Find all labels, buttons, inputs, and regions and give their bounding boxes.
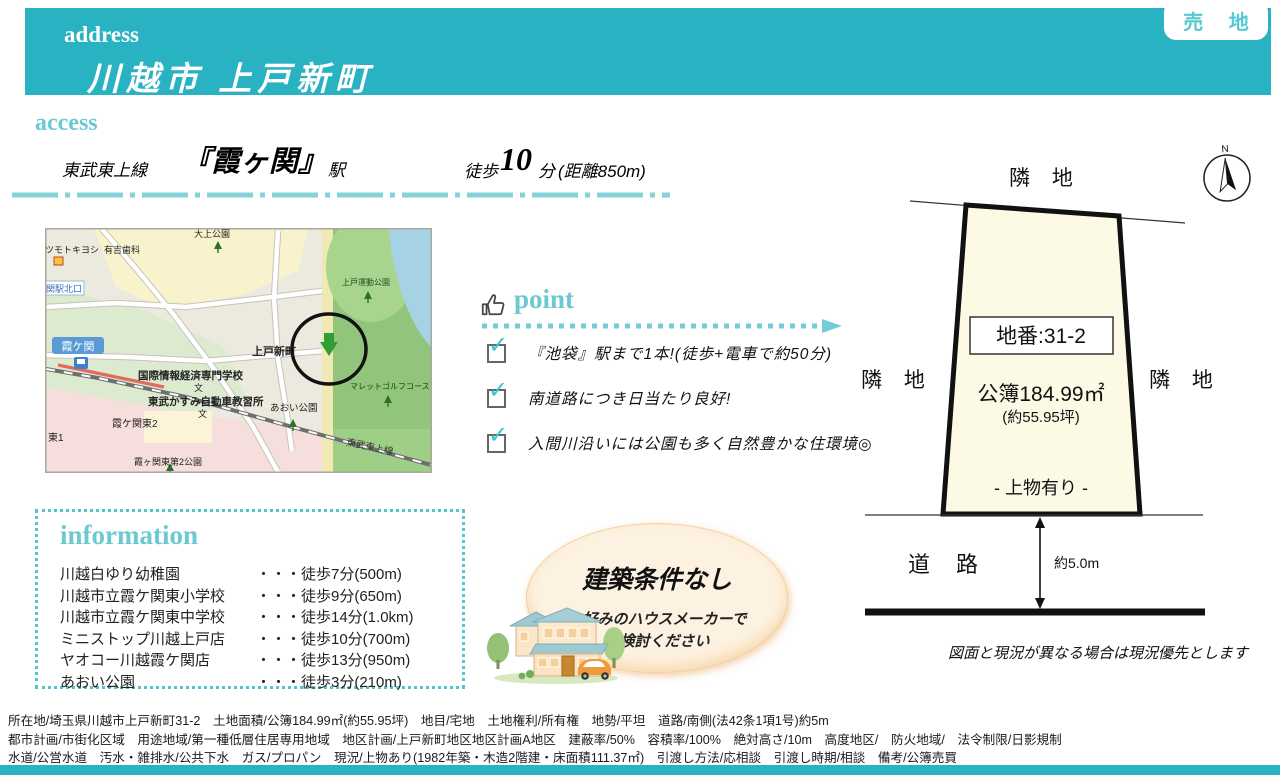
walk-distance: (距離850m) [558,157,646,182]
adjacent-land-label-right: 隣 地 [1149,369,1221,392]
plot-shape [943,205,1140,514]
property-flyer: address 川越市 上戸新町 売 地 access 東武東上線 『霞ヶ関』 … [0,0,1280,775]
area-map-graphic: 霞ケ関 関駅北口 マツモトキヨシ 有吉歯科 大上公園 上戸運動公園 上戸新町 [46,229,431,472]
adjacent-land-label-left: 隣 地 [861,369,933,392]
point-dotted-arrow [480,318,846,334]
walk-minutes: 10 [500,141,532,178]
station-name: 『霞ヶ関』 [182,138,327,180]
callout-title: 建築条件なし [527,560,787,596]
facility-distance: ・・・徒歩10分(700m) [256,631,410,648]
map-label-park-no2: 霞ヶ関東第2公園 [134,456,202,467]
facility-distance: ・・・徒歩3分(210m) [256,674,402,691]
registered-area: 公簿184.99㎡ [977,382,1104,406]
facility-distance: ・・・徒歩7分(500m) [256,566,402,583]
map-label-school1: 国際情報経済専門学校 [138,369,243,382]
point-section-label: point [514,284,574,315]
information-row: 川越白ゆり幼稚園・・・徒歩7分(500m) [60,564,414,586]
address-section-label: address [64,22,139,48]
map-label-park-sports: 上戸運動公園 [342,278,390,287]
facility-name: ヤオコー川越霞ケ関店 [60,650,256,672]
address-header-band: address 川越市 上戸新町 [25,8,1271,95]
sale-type-badge: 売 地 [1164,0,1268,40]
point-item-1: ✓ 『池袋』駅まで1本!(徒歩+電車で約50分) [487,342,832,364]
information-row: 川越市立霞ケ関東小学校・・・徒歩9分(650m) [60,586,414,608]
information-list: 川越白ゆり幼稚園・・・徒歩7分(500m) 川越市立霞ケ関東小学校・・・徒歩9分… [60,564,414,693]
road-width-value: 約5.0m [1054,555,1099,571]
map-label-drugstore: マツモトキヨシ [46,245,99,255]
details-line-2: 都市計画/市街化区域 用途地域/第一種低層住居専用地域 地区計画/上戸新町地区地… [8,731,1062,750]
rail-line-name: 東武東上線 [62,156,147,181]
point-item-text: 入間川沿いには公園も多く自然豊かな住環境◎ [528,432,873,454]
map-label-town: 上戸新町 [252,344,296,358]
area-map: 霞ケ関 関駅北口 マツモトキヨシ 有吉歯科 大上公園 上戸運動公園 上戸新町 [45,228,432,473]
station-suffix: 駅 [328,156,345,181]
school1-mark: 文 [194,382,203,393]
facility-name: 川越市立霞ケ関東小学校 [60,586,256,608]
checkbox-icon: ✓ [487,389,506,408]
building-note: - 上物有り - [994,478,1088,498]
compass-icon: N [1201,145,1252,203]
walk-unit: 分 [538,157,555,182]
information-row: ミニストップ川越上戸店・・・徒歩10分(700m) [60,629,414,651]
facility-name: あおい公園 [60,672,256,694]
information-row: あおい公園・・・徒歩3分(210m) [60,672,414,694]
details-line-1: 所在地/埼玉県川越市上戸新町31-2 土地面積/公簿184.99㎡(約55.95… [8,712,1062,731]
property-address: 川越市 上戸新町 [87,52,374,100]
house-illustration [486,596,626,686]
property-details: 所在地/埼玉県川越市上戸新町31-2 土地面積/公簿184.99㎡(約55.95… [8,712,1062,768]
walk-prefix: 徒歩 [464,157,498,182]
point-item-3: ✓ 入間川沿いには公園も多く自然豊かな住環境◎ [487,432,873,454]
facility-name: ミニストップ川越上戸店 [60,629,256,651]
adjacent-land-label-top: 隣 地 [1009,167,1081,190]
compass-north-label: N [1221,145,1229,155]
information-row: 川越市立霞ケ関東中学校・・・徒歩14分(1.0km) [60,607,414,629]
check-icon: ✓ [488,424,508,448]
lot-number: 地番:31-2 [996,325,1086,348]
point-item-text: 南道路につき日当たり良好! [528,387,731,409]
map-label-school2: 東武かすみ自動車教習所 [148,395,264,408]
information-box: information 川越白ゆり幼稚園・・・徒歩7分(500m) 川越市立霞ケ… [35,509,465,689]
map-label-area2: 東1 [48,431,64,444]
map-label-station-exit: 関駅北口 [46,284,82,294]
access-section-label: access [35,110,98,137]
facility-name: 川越白ゆり幼稚園 [60,564,256,586]
map-label-park-aoi: あおい公園 [270,403,318,414]
checkbox-icon: ✓ [487,434,506,453]
school2-mark: 文 [198,408,207,419]
area-tsubo: (約55.95坪) [1002,409,1080,426]
check-icon: ✓ [488,334,508,358]
facility-name: 川越市立霞ケ関東中学校 [60,607,256,629]
facility-distance: ・・・徒歩9分(650m) [256,588,402,605]
checkbox-icon: ✓ [487,344,506,363]
information-row: ヤオコー川越霞ケ関店・・・徒歩13分(950m) [60,650,414,672]
map-label-park-daijo: 大上公園 [194,229,230,239]
thumbs-up-icon [478,288,510,318]
map-label-area1: 霞ケ関東2 [112,417,158,430]
map-label-dental: 有吉歯科 [104,244,140,255]
map-label-golf: マレットゴルフコース [350,381,430,391]
road-label: 道 路 [908,552,988,577]
point-item-text: 『池袋』駅まで1本!(徒歩+電車で約50分) [528,342,832,364]
plot-diagram: 隣 地 隣 地 隣 地 N 地番:31-2 公簿184.99㎡ (約55.95坪… [840,145,1270,667]
facility-distance: ・・・徒歩14分(1.0km) [256,609,414,626]
access-divider [10,190,672,200]
bottom-accent-bar [0,765,1280,775]
diagram-disclaimer: 図面と現況が異なる場合は現況優先とします [948,645,1250,662]
drugstore-icon [54,257,63,265]
information-section-label: information [60,520,198,551]
sale-type-text: 売 地 [1183,6,1259,35]
facility-distance: ・・・徒歩13分(950m) [256,652,410,669]
check-icon: ✓ [488,379,508,403]
map-label-station: 霞ケ関 [62,340,95,353]
point-item-2: ✓ 南道路につき日当たり良好! [487,387,731,409]
